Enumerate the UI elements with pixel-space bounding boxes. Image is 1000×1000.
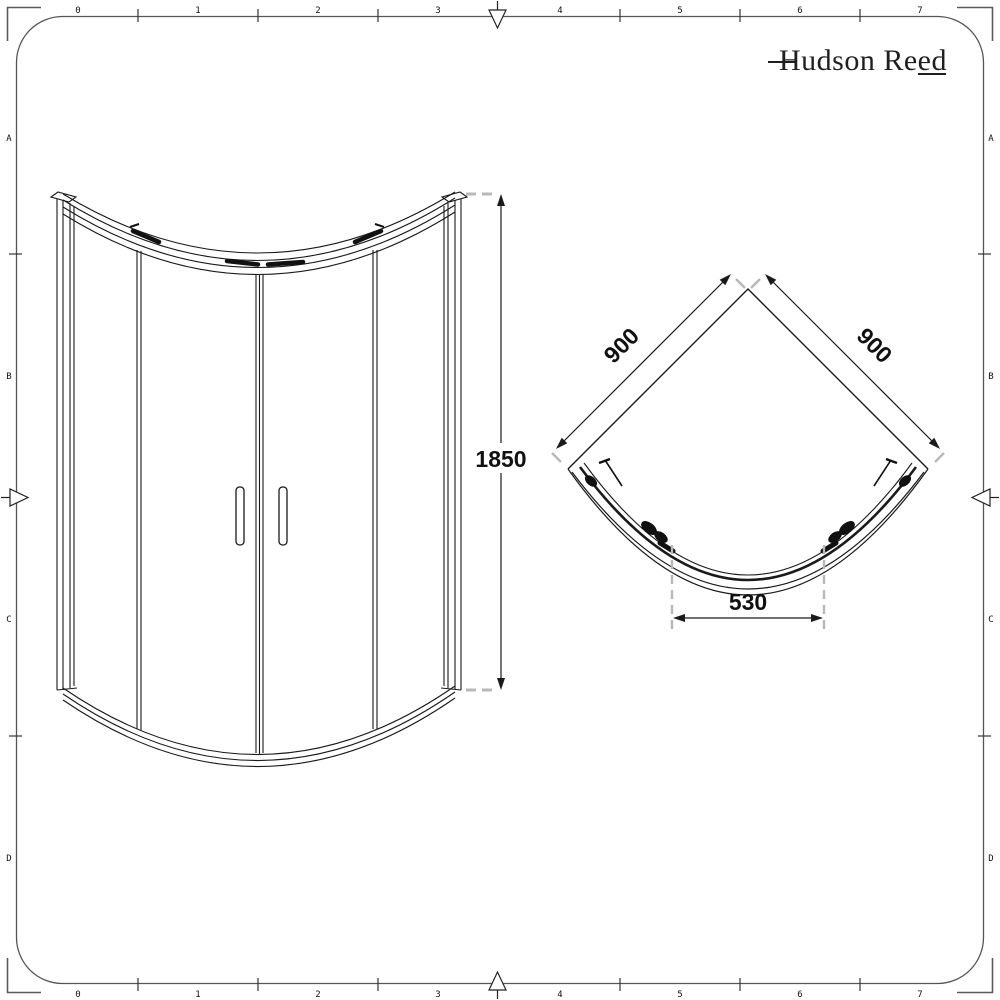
ruler-label: 4	[557, 990, 562, 1000]
logo-underline	[918, 73, 946, 75]
door-handle-right	[279, 487, 287, 545]
center-mark-left-icon	[1, 489, 28, 506]
plan-door-hardware-left	[584, 459, 673, 551]
ruler-label: A	[6, 134, 12, 144]
ruler-label: 1	[195, 6, 200, 16]
ruler-label: 0	[75, 990, 80, 1000]
center-mark-top-icon	[489, 1, 506, 28]
roller-hardware	[130, 224, 384, 265]
technical-drawing-canvas: 0 1 2 3 4 5 6 7 0 1 2 3 4 5 6 7 A B C D …	[0, 0, 1000, 1000]
center-mark-bottom-icon	[489, 972, 506, 999]
ruler-ticks	[9, 9, 991, 991]
ruler-label: D	[988, 854, 993, 864]
ruler-label: 1	[195, 990, 200, 1000]
ruler-label: 2	[315, 6, 320, 16]
ruler-bottom: 0 1 2 3 4 5 6 7	[75, 990, 922, 1000]
ruler-label: D	[6, 854, 11, 864]
ruler-label: C	[6, 615, 11, 625]
ruler-label: 2	[315, 990, 320, 1000]
door-handle-left	[236, 487, 244, 545]
height-dimension: 1850	[466, 194, 527, 690]
ruler-label: 3	[435, 6, 440, 16]
ruler-label: 5	[677, 990, 682, 1000]
ruler-label: C	[988, 615, 993, 625]
brand-logo: Hudson Reed	[768, 44, 952, 82]
height-dimension-label: 1850	[475, 446, 526, 472]
door-opening-dimension: 530	[672, 545, 824, 629]
ruler-label: 7	[917, 990, 922, 1000]
ruler-label: 3	[435, 990, 440, 1000]
sheet-border: 0 1 2 3 4 5 6 7 0 1 2 3 4 5 6 7 A B C D …	[1, 1, 999, 1000]
ruler-label: 0	[75, 6, 80, 16]
ruler-label: A	[988, 134, 994, 144]
right-side-dimension-label: 900	[852, 323, 898, 369]
crop-mark-bottom-right	[957, 958, 993, 993]
ruler-label: 4	[557, 6, 562, 16]
right-side-dimension: 900	[751, 274, 944, 462]
ruler-label: 6	[797, 990, 802, 1000]
drawing-sheet: 0 1 2 3 4 5 6 7 0 1 2 3 4 5 6 7 A B C D …	[0, 0, 1000, 1000]
front-elevation-view	[51, 192, 467, 767]
ruler-label: 6	[797, 6, 802, 16]
ruler-label: B	[6, 372, 11, 382]
ruler-label: B	[988, 372, 993, 382]
left-side-dimension: 900	[552, 274, 745, 462]
center-mark-right-icon	[972, 489, 999, 506]
ruler-label: 7	[917, 6, 922, 16]
plan-door-hardware-right	[823, 459, 912, 551]
door-opening-dimension-label: 530	[729, 589, 767, 615]
left-side-dimension-label: 900	[599, 323, 645, 369]
ruler-label: 5	[677, 6, 682, 16]
